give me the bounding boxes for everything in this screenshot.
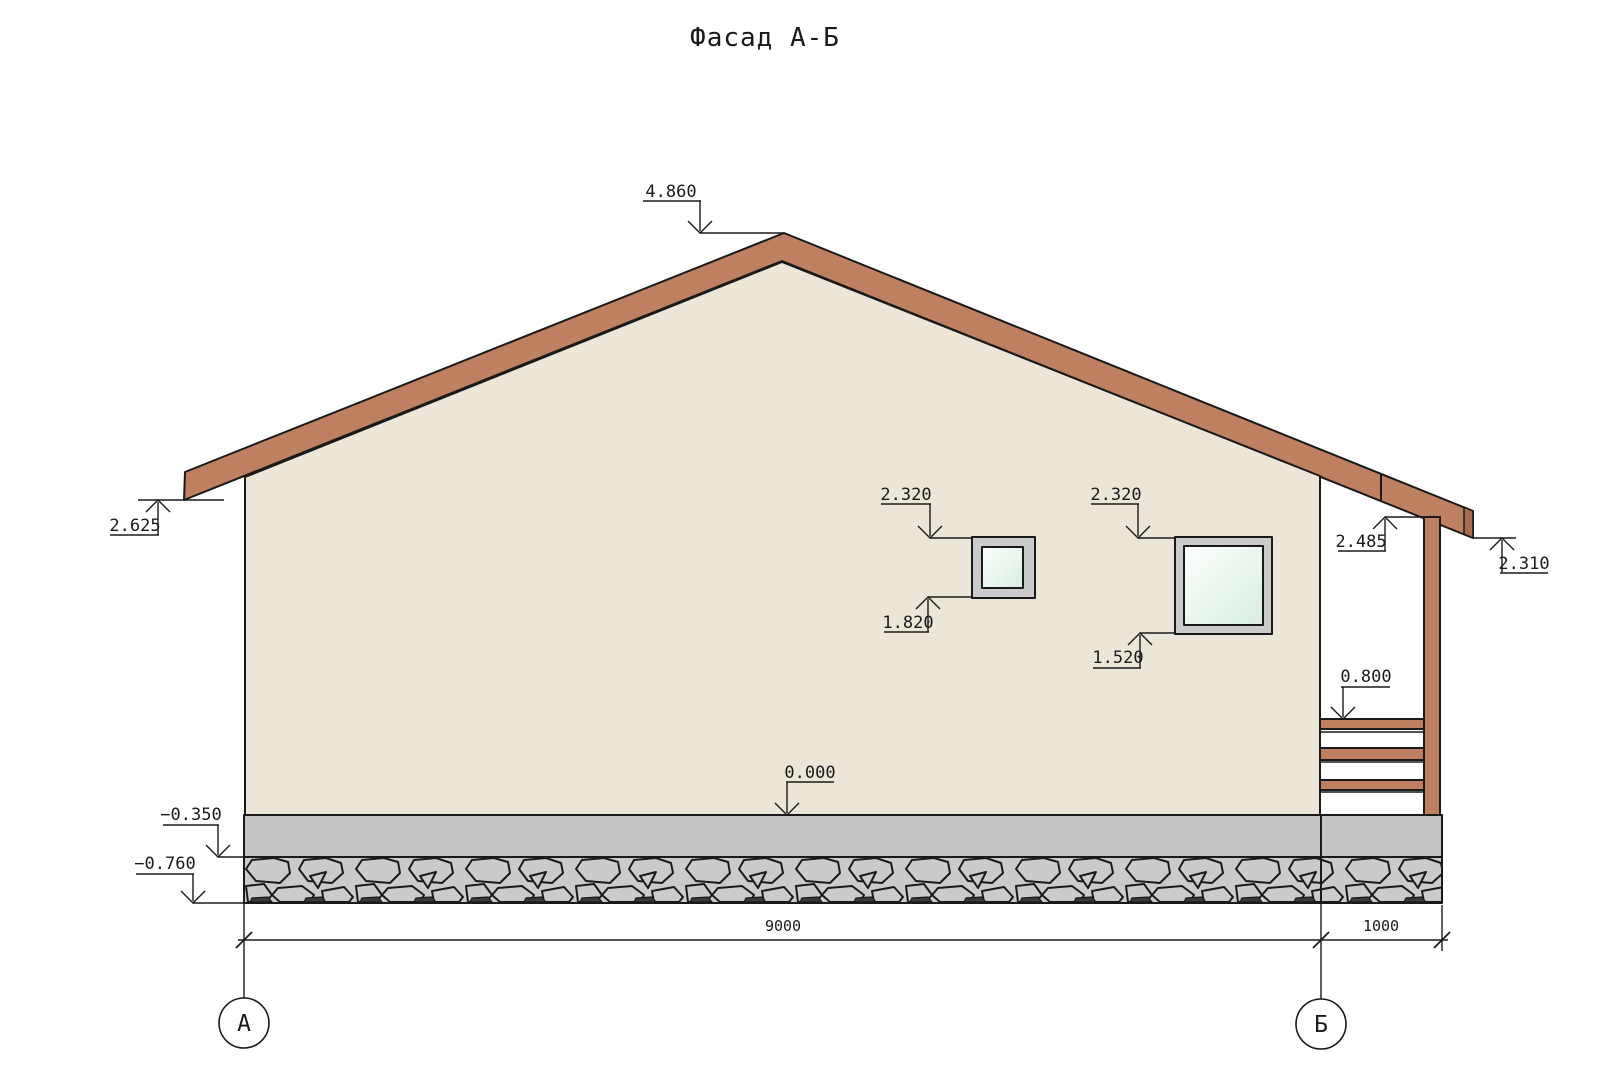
axis-marker-b: Б <box>1296 999 1346 1049</box>
elevation-value: 2.320 <box>880 485 931 505</box>
elevation-mark-plinth-top: −0.350 <box>160 805 246 857</box>
axis-label: А <box>237 1011 251 1037</box>
elevation-value: 1.820 <box>882 613 933 633</box>
elevation-value: 2.625 <box>109 516 160 536</box>
dimension-chain: 9000 1000 <box>236 903 1450 999</box>
dimension-value-porch: 1000 <box>1363 917 1399 935</box>
window-large-glass <box>1184 546 1263 625</box>
elevation-value: −0.350 <box>160 805 221 825</box>
elevation-value: 0.000 <box>784 763 835 783</box>
elevation-mark-porch-railing: 0.800 <box>1331 667 1392 719</box>
railing-bar-top <box>1320 719 1424 729</box>
axis-label: Б <box>1314 1012 1328 1038</box>
window-small <box>972 537 1035 598</box>
dimension-value-wall: 9000 <box>765 917 801 935</box>
foundation-stone-band <box>244 857 1442 903</box>
facade-drawing: Фасад А-Б 4.860 2.625 2.320 <box>0 0 1601 1080</box>
elevation-value: −0.760 <box>134 854 195 874</box>
railing-bar-middle <box>1320 748 1424 760</box>
elevation-value: 2.320 <box>1090 485 1141 505</box>
drawing-title: Фасад А-Б <box>690 23 840 53</box>
elevation-mark-porch-beam: 2.485 <box>1335 517 1424 552</box>
elevation-value: 0.800 <box>1340 667 1391 687</box>
elevation-mark-ridge: 4.860 <box>643 182 784 233</box>
window-small-glass <box>982 547 1023 588</box>
plinth-band <box>244 815 1442 857</box>
elevation-value: 1.520 <box>1092 648 1143 668</box>
railing-bar-bottom <box>1320 780 1424 790</box>
drawing-sheet: Фасад А-Б 4.860 2.625 2.320 <box>0 0 1601 1080</box>
porch-post <box>1424 517 1440 815</box>
elevation-value: 2.485 <box>1335 532 1386 552</box>
window-large <box>1175 537 1272 634</box>
elevation-value: 4.860 <box>645 182 696 202</box>
elevation-mark-footing-bottom: −0.760 <box>134 854 246 903</box>
axis-marker-a: А <box>219 998 269 1048</box>
elevation-mark-eave-right: 2.310 <box>1473 538 1550 574</box>
elevation-mark-eave-left: 2.625 <box>109 500 224 536</box>
roof-right-end-face <box>1464 507 1473 538</box>
elevation-value: 2.310 <box>1498 554 1549 574</box>
